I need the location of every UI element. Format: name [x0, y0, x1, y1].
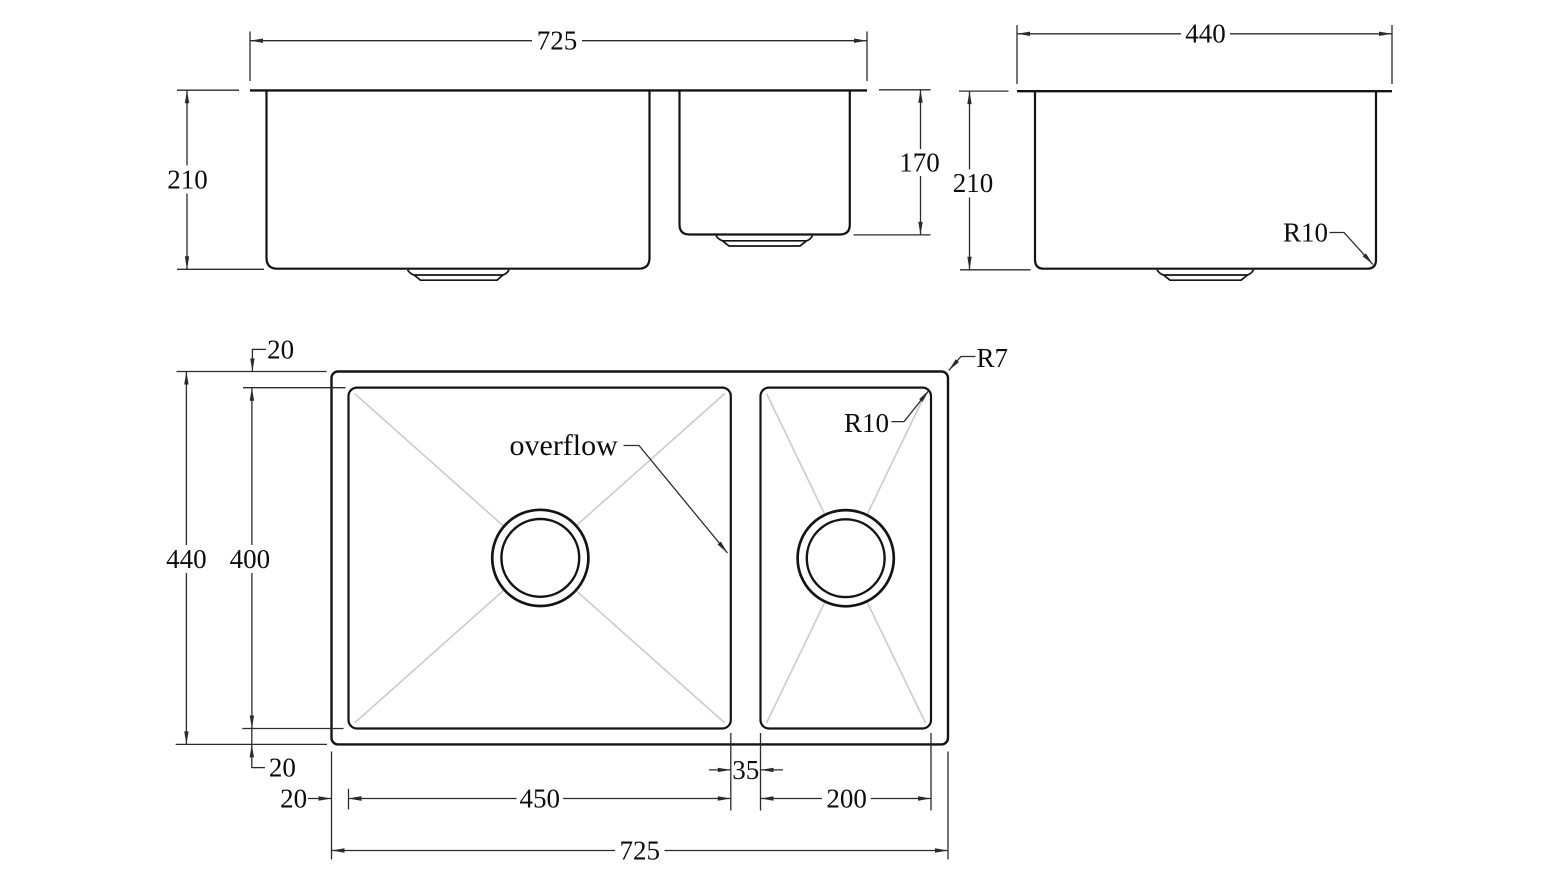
- svg-text:overflow: overflow: [510, 429, 619, 462]
- svg-text:20: 20: [280, 783, 307, 813]
- svg-text:170: 170: [899, 147, 940, 177]
- svg-text:20: 20: [267, 334, 294, 364]
- svg-text:R10: R10: [1283, 218, 1328, 248]
- svg-text:20: 20: [269, 752, 296, 782]
- svg-text:R10: R10: [844, 408, 889, 438]
- svg-text:200: 200: [826, 783, 867, 813]
- svg-text:210: 210: [167, 165, 208, 195]
- svg-text:400: 400: [230, 544, 271, 574]
- svg-text:35: 35: [732, 755, 759, 785]
- svg-text:725: 725: [619, 835, 660, 865]
- svg-text:210: 210: [953, 168, 994, 198]
- svg-text:440: 440: [166, 544, 207, 574]
- svg-text:R7: R7: [977, 343, 1009, 373]
- svg-text:440: 440: [1185, 19, 1226, 49]
- svg-text:450: 450: [520, 783, 561, 813]
- svg-text:725: 725: [537, 26, 578, 56]
